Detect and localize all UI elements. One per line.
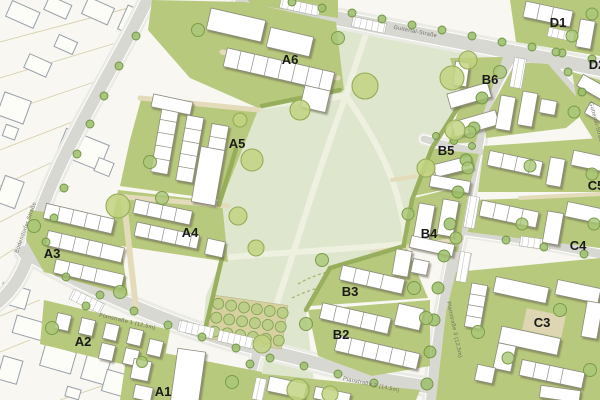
zone-label-c5: C5: [588, 178, 600, 193]
zone-label-b4: B4: [421, 226, 438, 241]
zone-label-b3: B3: [342, 284, 359, 299]
zone-label-d2: D2: [589, 57, 600, 72]
zone-label-a2: A2: [75, 334, 92, 349]
zone-label-b6: B6: [482, 72, 499, 87]
zone-label-c4: C4: [570, 238, 587, 253]
zone-label-a5: A5: [229, 136, 246, 151]
zone-label-a4: A4: [182, 225, 199, 240]
site-plan-canvas: A1 A2 A3 A4 A5 A6 B2 B3 B4 B5 B6 C3 C4 C…: [0, 0, 600, 400]
zone-label-c3: C3: [534, 315, 551, 330]
zone-label-b5: B5: [438, 143, 455, 158]
zone-label-a3: A3: [44, 246, 61, 261]
zone-label-a6: A6: [282, 52, 299, 67]
site-plan-map: A1 A2 A3 A4 A5 A6 B2 B3 B4 B5 B6 C3 C4 C…: [0, 0, 600, 400]
zone-label-d1: D1: [550, 15, 567, 30]
zone-label-a1: A1: [155, 384, 172, 399]
zone-label-b2: B2: [333, 327, 350, 342]
